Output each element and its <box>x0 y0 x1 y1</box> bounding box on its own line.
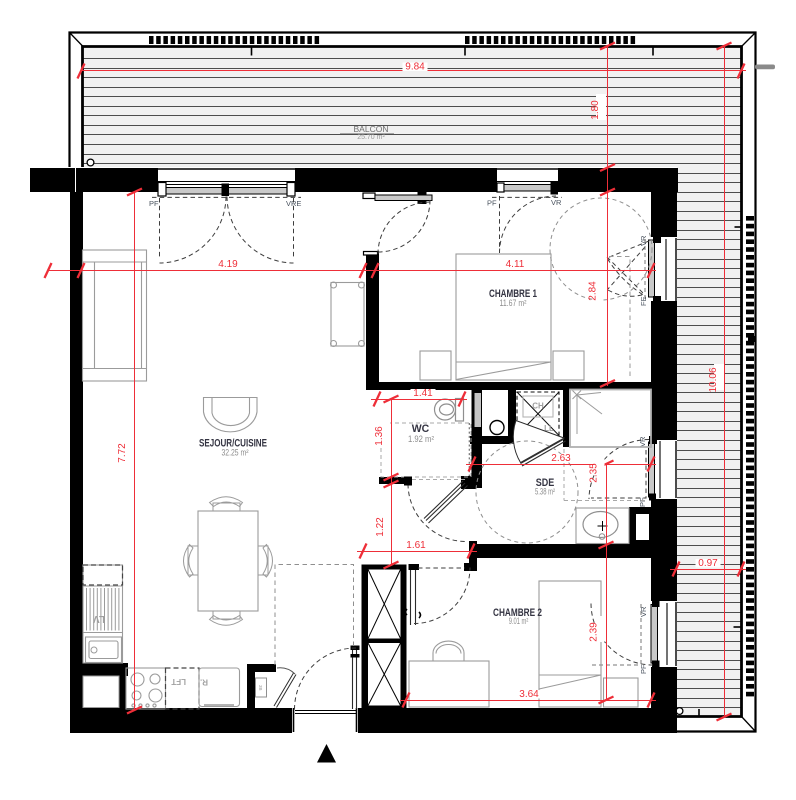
svg-text:2.84: 2.84 <box>588 281 599 301</box>
svg-text:5.38 m²: 5.38 m² <box>535 487 555 497</box>
svg-text:1.92 m²: 1.92 m² <box>408 434 434 444</box>
svg-text:25.70 m²: 25.70 m² <box>357 134 385 141</box>
svg-text:PF: PF <box>149 199 159 208</box>
svg-text:1.80: 1.80 <box>590 100 601 120</box>
svg-text:4.11: 4.11 <box>506 259 525 270</box>
svg-text:VR: VR <box>638 436 647 447</box>
svg-text:2.39: 2.39 <box>589 622 600 642</box>
svg-text:FE: FE <box>639 296 648 306</box>
svg-text:VR: VR <box>551 198 562 207</box>
svg-text:PF: PF <box>639 664 648 674</box>
svg-text:LV: LV <box>93 613 105 624</box>
svg-text:7.72: 7.72 <box>117 443 128 463</box>
svg-text:R.: R. <box>200 678 208 687</box>
svg-text:PF: PF <box>487 199 497 208</box>
svg-text:32.25 m²: 32.25 m² <box>222 448 249 458</box>
svg-text:3.64: 3.64 <box>519 689 539 700</box>
svg-text:1.36: 1.36 <box>374 426 385 446</box>
svg-text:BALCON: BALCON <box>354 124 389 134</box>
svg-text:2.35: 2.35 <box>589 463 600 483</box>
svg-text:11.67 m²: 11.67 m² <box>500 298 527 308</box>
svg-text:4.19: 4.19 <box>218 259 238 270</box>
svg-text:10.06: 10.06 <box>708 367 719 392</box>
svg-text:1.22: 1.22 <box>375 517 386 537</box>
svg-text:1.61: 1.61 <box>406 540 426 551</box>
svg-text:2.63: 2.63 <box>551 453 571 464</box>
svg-text:9.84: 9.84 <box>405 62 425 73</box>
svg-text:CH: CH <box>532 402 544 411</box>
svg-text:9.01 m²: 9.01 m² <box>509 616 529 626</box>
svg-text:3B: 3B <box>258 685 263 691</box>
svg-text:1.41: 1.41 <box>413 388 433 399</box>
svg-text:VR: VR <box>639 606 648 617</box>
svg-text:0.97: 0.97 <box>698 558 718 569</box>
svg-text:LFT: LFT <box>171 677 186 686</box>
